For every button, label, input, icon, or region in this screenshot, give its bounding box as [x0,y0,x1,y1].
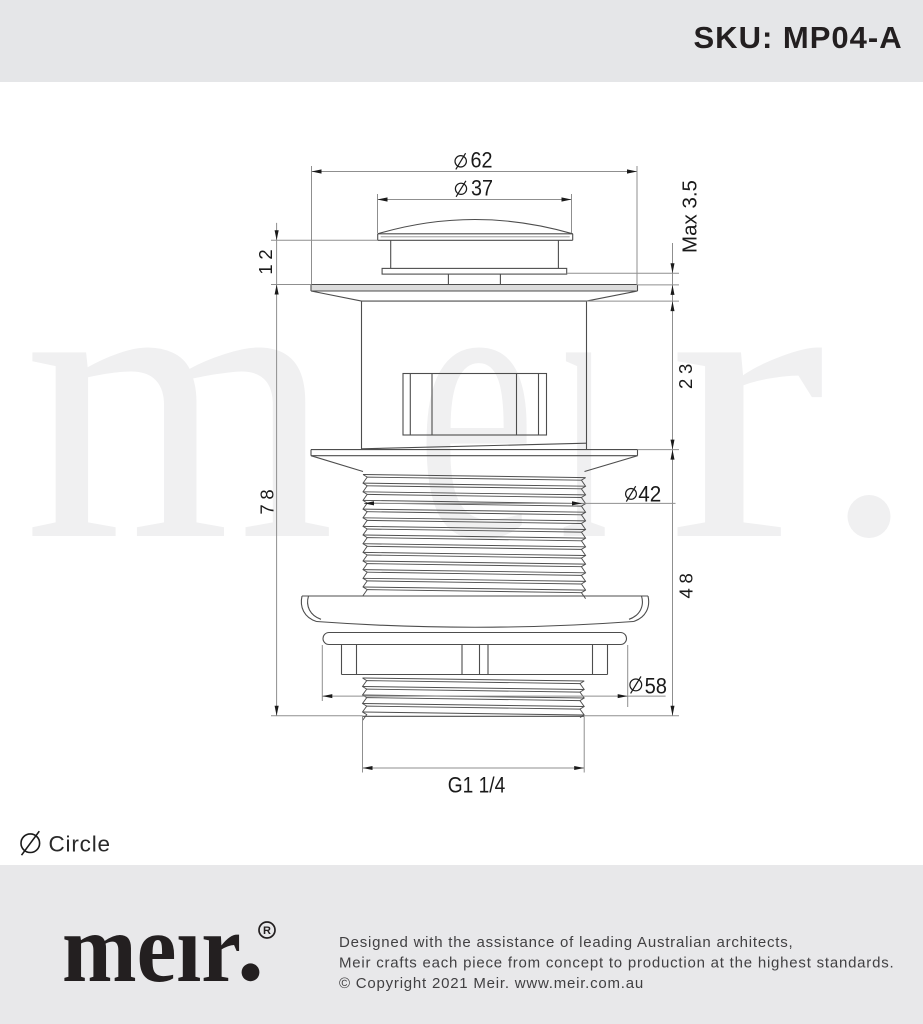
svg-text:1: 1 [255,264,276,274]
svg-text:8: 8 [676,573,697,583]
svg-text:R: R [263,925,271,937]
svg-text:4: 4 [676,588,697,598]
svg-text:SKU: MP04-A: SKU: MP04-A [694,20,903,55]
svg-text:© Copyright 2021 Meir. www.mei: © Copyright 2021 Meir. www.meir.com.au [339,975,644,992]
svg-text:42: 42 [638,481,661,506]
svg-text:Max 3.5: Max 3.5 [679,180,702,253]
svg-text:Circle: Circle [49,832,111,857]
svg-text:37: 37 [471,176,493,201]
svg-text:Meir crafts each piece from co: Meir crafts each piece from concept to p… [339,955,894,972]
svg-text:2: 2 [675,379,696,389]
svg-text:meır: meır [62,895,241,1002]
svg-text:Designed with the assistance o: Designed with the assistance of leading … [339,934,793,951]
svg-text:2: 2 [255,249,276,259]
svg-text:7: 7 [257,504,278,514]
svg-text:62: 62 [471,147,493,172]
svg-text:m: m [24,180,335,623]
svg-text:58: 58 [645,674,667,699]
svg-text:8: 8 [257,489,278,499]
svg-text:3: 3 [675,364,696,374]
svg-text:G1 1/4: G1 1/4 [448,773,506,798]
